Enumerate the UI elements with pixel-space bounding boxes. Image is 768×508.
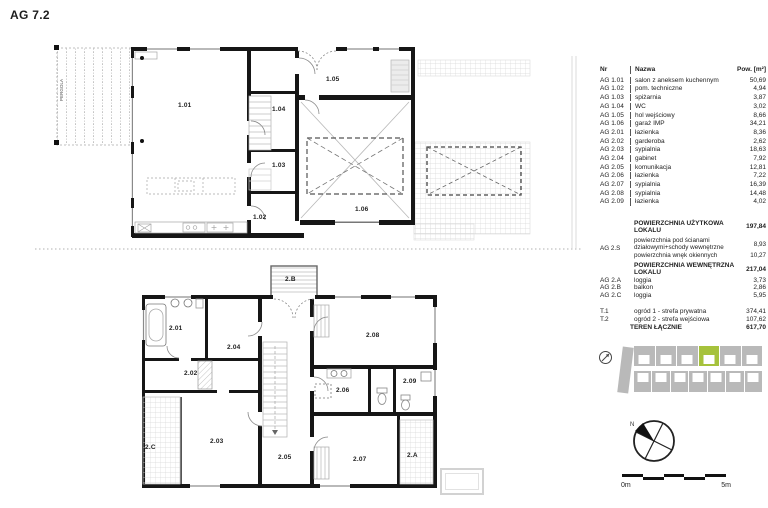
header-area: Pow. [m²]	[736, 66, 766, 73]
table-row: AG 2.03sypialnia18,63	[600, 146, 766, 155]
site-unit	[726, 371, 743, 392]
loggias	[143, 397, 433, 484]
table-row: AG 2.06łazienka7,22	[600, 172, 766, 181]
compass-rose: N	[629, 416, 677, 464]
pergola-label: PERGOLA	[59, 78, 64, 101]
room-label-1-01: 1.01	[178, 102, 191, 109]
room-label-1-03: 1.03	[272, 162, 285, 169]
scale-bar: 0m 5m	[621, 474, 731, 489]
site-unit	[720, 346, 741, 366]
room-label-2-03: 2.03	[210, 438, 223, 445]
terrain-row: T.1ogród 1 - strefa prywatna374,41	[600, 308, 766, 316]
scale-end-label: 5m	[721, 482, 731, 489]
extra-row: AG 2.Cloggia5,95	[600, 291, 766, 299]
table-row: AG 2.04gabinet7,92	[600, 154, 766, 163]
site-unit	[677, 346, 698, 366]
table-row: AG 2.08sypialnia14,48	[600, 189, 766, 198]
upper-floor-plan: 2.01 2.02 2.03 2.04 2.05 2.06 2.07 2.08 …	[135, 262, 440, 500]
site-row-bottom	[634, 371, 762, 392]
site-unit-footprint	[692, 373, 703, 382]
room-label-1-06: 1.06	[355, 206, 368, 213]
site-unit-footprint	[660, 355, 671, 364]
site-row-top	[634, 346, 762, 366]
site-unit-footprint	[725, 355, 736, 364]
site-unit-footprint	[711, 373, 722, 382]
site-unit-footprint	[639, 355, 650, 364]
extra-row: AG 2.Aloggia3,73	[600, 276, 766, 284]
site-unit-footprint	[748, 373, 759, 382]
pergola: PERGOLA	[54, 45, 133, 145]
site-unit	[634, 346, 655, 366]
walls-area-row: powierzchnia pod ścianami działowymi+sch…	[630, 238, 766, 252]
ground-floor-drawing: PERGOLA	[35, 28, 595, 260]
area-table: Nr Nazwa Pow. [m²] AG 1.01salon z anekse…	[600, 64, 766, 332]
header-name: Nazwa	[630, 66, 736, 73]
room-label-2-09: 2.09	[403, 378, 416, 385]
site-unit	[742, 346, 763, 366]
header-nr: Nr	[600, 66, 630, 73]
structural-columns	[140, 56, 144, 143]
bath-fixtures	[146, 299, 431, 410]
site-locator-map	[598, 344, 768, 396]
site-unit	[634, 371, 651, 392]
stairs-upper	[263, 342, 287, 437]
entry-steps	[391, 60, 409, 92]
table-row: AG 1.03spiżarnia3,87	[600, 93, 766, 102]
room-label-1-04: 1.04	[272, 106, 285, 113]
ground-floor-plan: PERGOLA	[35, 28, 595, 260]
room-label-2-06: 2.06	[336, 387, 349, 394]
table-row: AG 1.06garaż IMP34,21	[600, 119, 766, 128]
room-label-1-05: 1.05	[326, 76, 339, 83]
site-unit-footprint	[729, 373, 740, 382]
mini-north-icon	[598, 350, 613, 365]
walls-area-nr: AG 2.S	[600, 238, 630, 260]
room-label-2-05: 2.05	[278, 454, 291, 461]
room-label-1-02: 1.02	[253, 214, 266, 221]
exterior-stair-inner-line	[445, 473, 479, 490]
table-row: AG 2.05komunikacja12,81	[600, 163, 766, 172]
table-row: AG 2.09łazienka4,02	[600, 198, 766, 207]
site-unit	[745, 371, 762, 392]
site-unit	[652, 371, 669, 392]
scale-start-label: 0m	[621, 482, 631, 489]
room-label-2-07: 2.07	[353, 456, 366, 463]
room-label-2-08: 2.08	[366, 332, 379, 339]
site-unit-footprint	[637, 373, 648, 382]
room-label-2-02: 2.02	[184, 370, 197, 377]
paving-hatch	[414, 60, 530, 240]
site-unit-footprint	[703, 355, 714, 364]
garage-floor-markings	[301, 102, 409, 218]
table-row: AG 1.01salon z aneksem kuchennym50,69	[600, 76, 766, 85]
site-unit-footprint	[656, 373, 667, 382]
table-row: AG 1.04WC3,02	[600, 102, 766, 111]
internal-area-total: POWIERZCHNIA WEWNĘTRZNA LOKALU 217,04	[600, 262, 766, 276]
room-label-2-c: 2.C	[145, 444, 156, 451]
terrain-total: TEREN ŁĄCZNIE 617,70	[600, 323, 766, 332]
site-unit	[708, 371, 725, 392]
compass-north-label: N	[630, 422, 634, 428]
site-unit-footprint	[674, 373, 685, 382]
room-label-2-01: 2.01	[169, 325, 182, 332]
walls-area-group: AG 2.S powierzchnia pod ścianami działow…	[600, 238, 766, 260]
walls	[131, 47, 415, 238]
terrain-row: T.2ogród 2 - strefa wejściowa107,62	[600, 315, 766, 323]
exterior-stair-outline	[440, 468, 484, 495]
site-unit	[656, 346, 677, 366]
table-row: AG 1.05hol wejściowy8,66	[600, 111, 766, 120]
scale-bar-segments	[622, 474, 726, 481]
room-label-2-b: 2.B	[285, 276, 296, 283]
table-header-row: Nr Nazwa Pow. [m²]	[600, 64, 766, 76]
table-row: AG 1.02pom. techniczne4,94	[600, 85, 766, 94]
room-label-2-04: 2.04	[227, 344, 240, 351]
site-unit-footprint	[682, 355, 693, 364]
stairs-ground	[249, 96, 271, 190]
table-row: AG 2.07sypialnia16,39	[600, 180, 766, 189]
site-unit	[689, 371, 706, 392]
kitchen	[135, 52, 247, 233]
table-row: AG 2.01łazienka8,36	[600, 128, 766, 137]
upper-floor-drawing	[135, 262, 440, 500]
site-unit	[671, 371, 688, 392]
compass-north-arrow	[635, 423, 654, 441]
extra-row: AG 2.Bbalkon2,86	[600, 284, 766, 292]
site-road	[617, 347, 634, 394]
site-unit-footprint	[746, 355, 757, 364]
room-label-2-a: 2.A	[407, 452, 418, 459]
usable-area-total: POWIERZCHNIA UŻYTKOWA LOKALU 197,84	[600, 222, 766, 231]
table-row: AG 2.02garderoba2,62	[600, 137, 766, 146]
page-title: AG 7.2	[10, 8, 50, 22]
window-recess-row: powierzchnia wnęk okiennych 10,27	[630, 252, 766, 260]
site-unit-highlighted	[699, 346, 720, 366]
